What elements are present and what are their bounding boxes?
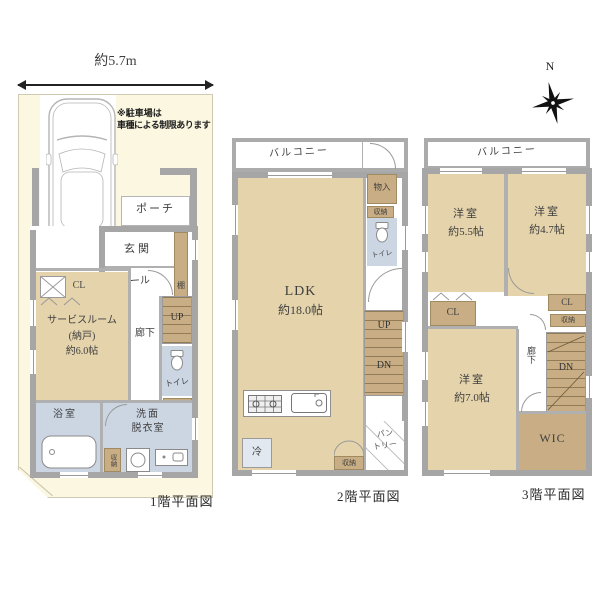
label-bath: 浴室 xyxy=(40,409,90,421)
label-storage-f2-a: 収納 xyxy=(367,208,394,216)
window-mark xyxy=(232,300,238,330)
window-mark xyxy=(60,472,88,478)
parking-note-line1: ※駐車場は xyxy=(117,107,213,119)
bathtub-icon xyxy=(41,435,97,469)
dimension-arrow xyxy=(18,84,213,86)
window-mark xyxy=(192,240,198,260)
f1-wall-bottom xyxy=(30,472,198,478)
window-mark xyxy=(422,402,428,426)
window-mark xyxy=(268,172,332,178)
toilet-icon-f1 xyxy=(169,350,185,371)
label-corridor-f1: 廊下 xyxy=(131,328,159,340)
storage-f1-b: 収納 xyxy=(104,448,121,472)
label-shelf: 棚 xyxy=(174,281,188,290)
service-room-label: サービスルーム (納戸) 約6.0帖 xyxy=(36,315,128,358)
stove-icon xyxy=(248,395,282,413)
f1-wall-right xyxy=(192,226,198,478)
window-mark xyxy=(422,252,428,272)
label-room55-2: 約5.5帖 xyxy=(428,226,504,239)
label-entrance: 玄関 xyxy=(105,243,171,256)
label-porch: ポーチ xyxy=(121,203,190,216)
label-washroom-2: 脱衣室 xyxy=(118,423,178,435)
window-mark xyxy=(138,472,162,478)
compass-icon xyxy=(526,76,581,131)
window-mark xyxy=(232,205,238,235)
window-mark xyxy=(586,252,592,272)
window-mark xyxy=(252,470,296,476)
label-corridor-f3: 廊下 xyxy=(524,338,538,372)
window-mark xyxy=(402,322,408,352)
label-wic: WIC xyxy=(519,432,586,446)
window-mark xyxy=(522,168,566,174)
site-width-label: 約5.7m xyxy=(18,54,213,70)
label-closet-f3-left: CL xyxy=(430,307,476,319)
label-monoire: 物入 xyxy=(367,183,397,193)
label-storage-f3: 収納 xyxy=(550,316,586,324)
toilet-icon-f2 xyxy=(374,222,390,243)
floor3-caption: 3階平面図 xyxy=(522,484,586,503)
label-ldk-2: 約18.0帖 xyxy=(238,304,363,318)
floorplan-canvas: 約5.7m ※駐車場は 車種による制限あります ポーチ 玄関 ホール 棚 xyxy=(0,0,600,600)
label-room70-2: 約7.0帖 xyxy=(428,392,516,405)
window-mark xyxy=(444,470,490,476)
label-closet-f3-right: CL xyxy=(548,297,586,307)
parking-note-line2: 車種による制限あります xyxy=(117,119,213,131)
window-mark xyxy=(30,350,36,374)
floor1-caption: 1階平面図 xyxy=(150,491,214,510)
label-washroom-1: 洗面 xyxy=(118,409,178,421)
label-room70-1: 洋室 xyxy=(428,374,516,387)
folding-door-icon-f3 xyxy=(432,292,476,301)
window-mark xyxy=(586,206,592,234)
porch-wall-right xyxy=(190,168,197,232)
label-room55-1: 洋室 xyxy=(428,208,504,221)
label-closet-f1: CL xyxy=(68,280,90,292)
compass-n-label: N xyxy=(540,60,560,74)
window-mark xyxy=(586,376,592,398)
window-mark xyxy=(422,206,428,234)
label-dn-f2: DN xyxy=(364,360,404,372)
f1-service-top-line xyxy=(36,268,128,271)
washer-icon xyxy=(126,448,150,472)
label-room47-1: 洋室 xyxy=(508,206,586,219)
sink-icon-f1 xyxy=(155,449,188,466)
label-fridge: 冷 xyxy=(242,447,272,459)
window-mark xyxy=(192,418,198,440)
floor2-caption: 2階平面図 xyxy=(337,486,401,505)
label-ldk-1: LDK xyxy=(238,284,363,300)
folding-door-icon-f1 xyxy=(40,297,84,306)
label-room47-2: 約4.7帖 xyxy=(508,224,586,237)
window-mark xyxy=(422,352,428,380)
closet-x-icon xyxy=(40,276,66,298)
sink-icon-f2 xyxy=(291,393,327,413)
window-mark xyxy=(440,168,482,174)
f3-room-divider xyxy=(504,174,508,296)
double-door-icon xyxy=(334,440,364,456)
label-up-f1: UP xyxy=(162,312,192,324)
window-mark xyxy=(402,226,408,250)
f2-balcony-divider xyxy=(362,142,363,170)
label-up-f2: UP xyxy=(364,320,404,332)
window-mark xyxy=(30,300,36,326)
shoe-cabinet xyxy=(174,232,188,304)
label-dn-f3: DN xyxy=(546,362,586,374)
room-ldk xyxy=(238,178,363,470)
label-storage-f2-b: 収納 xyxy=(334,459,364,467)
